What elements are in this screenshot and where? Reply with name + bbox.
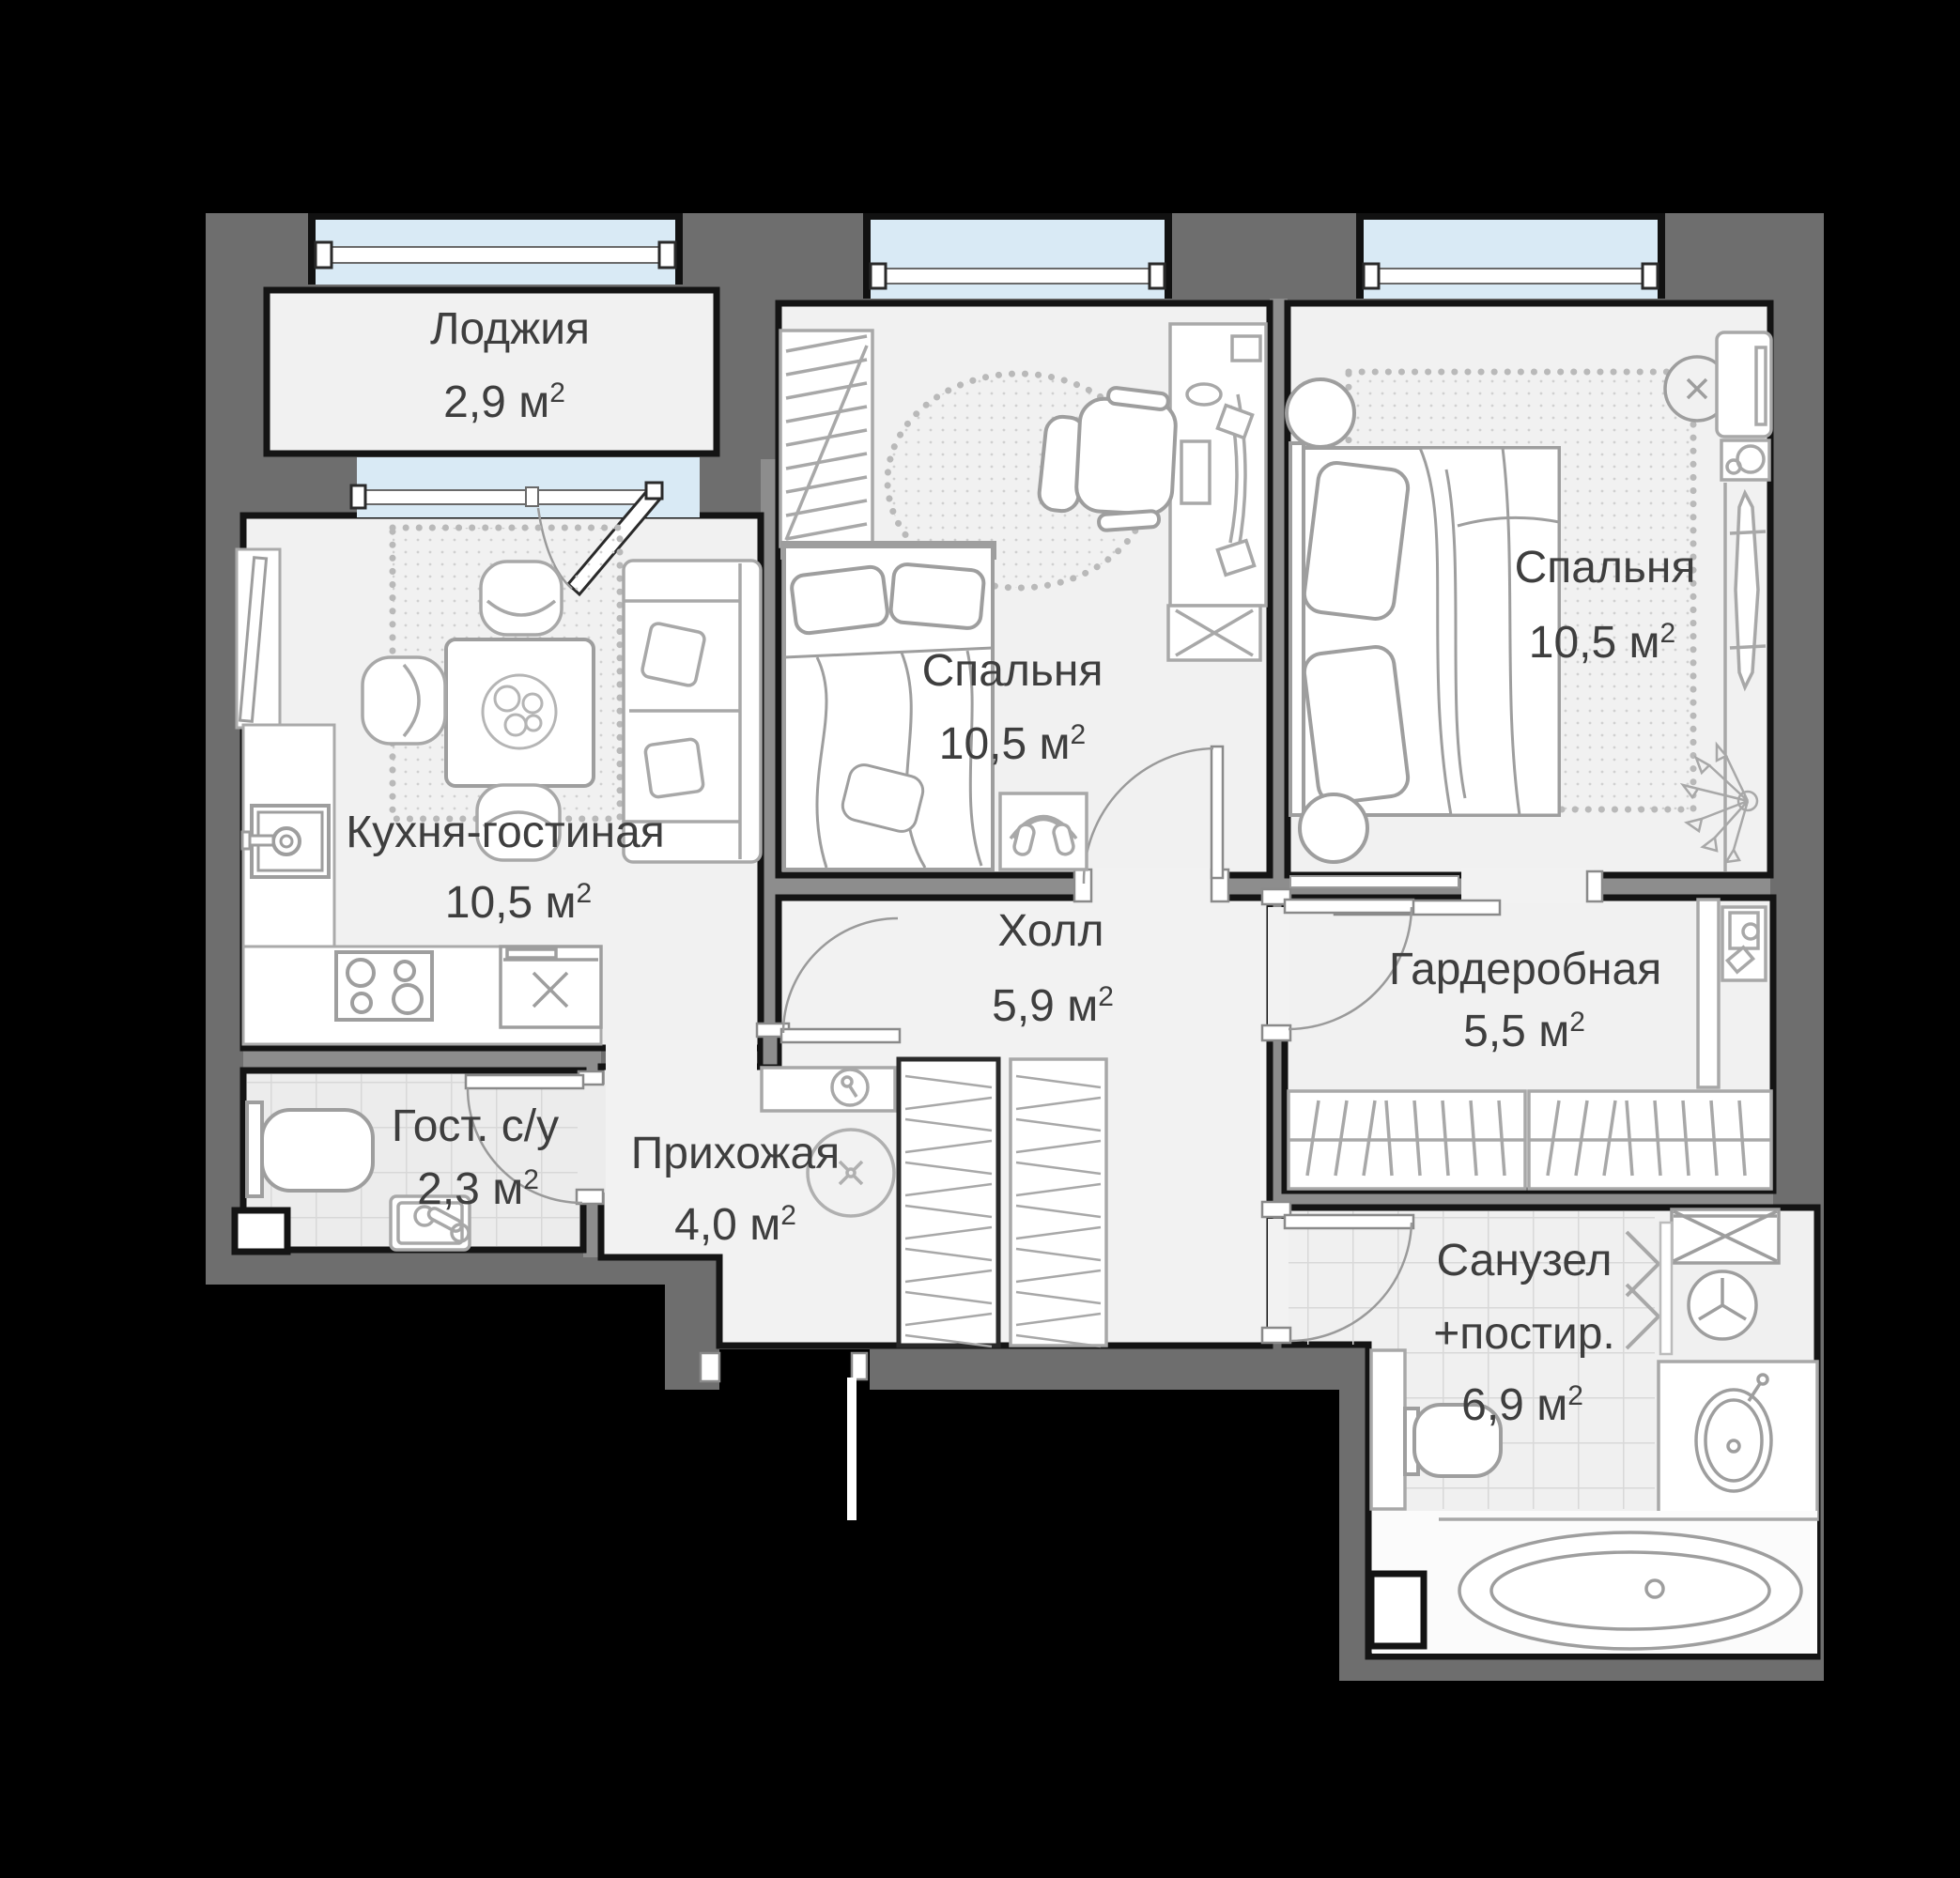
svg-text:10,5 м2: 10,5 м2 [939, 719, 1086, 769]
svg-text:5,5 м2: 5,5 м2 [1463, 1007, 1585, 1056]
svg-text:Санузел: Санузел [1437, 1236, 1613, 1285]
svg-text:5,9 м2: 5,9 м2 [992, 981, 1114, 1031]
svg-text:Кухня-гостиная: Кухня-гостиная [346, 808, 665, 857]
svg-text:Гардеробная: Гардеробная [1389, 945, 1661, 994]
svg-text:Спальня: Спальня [1515, 543, 1696, 593]
svg-text:10,5 м2: 10,5 м2 [1529, 618, 1675, 668]
svg-text:Лоджия: Лоджия [430, 304, 590, 354]
svg-text:Холл: Холл [997, 906, 1103, 956]
svg-text:6,9 м2: 6,9 м2 [1461, 1380, 1583, 1430]
svg-text:10,5 м2: 10,5 м2 [445, 878, 592, 928]
svg-text:2,9 м2: 2,9 м2 [443, 377, 565, 427]
svg-text:2,3 м2: 2,3 м2 [417, 1164, 539, 1214]
svg-text:4,0 м2: 4,0 м2 [674, 1200, 796, 1250]
svg-text:Прихожая: Прихожая [631, 1129, 840, 1178]
svg-text:+постир.: +постир. [1433, 1309, 1615, 1359]
svg-text:Спальня: Спальня [922, 646, 1103, 696]
svg-text:Гост. с/у: Гост. с/у [392, 1101, 559, 1151]
